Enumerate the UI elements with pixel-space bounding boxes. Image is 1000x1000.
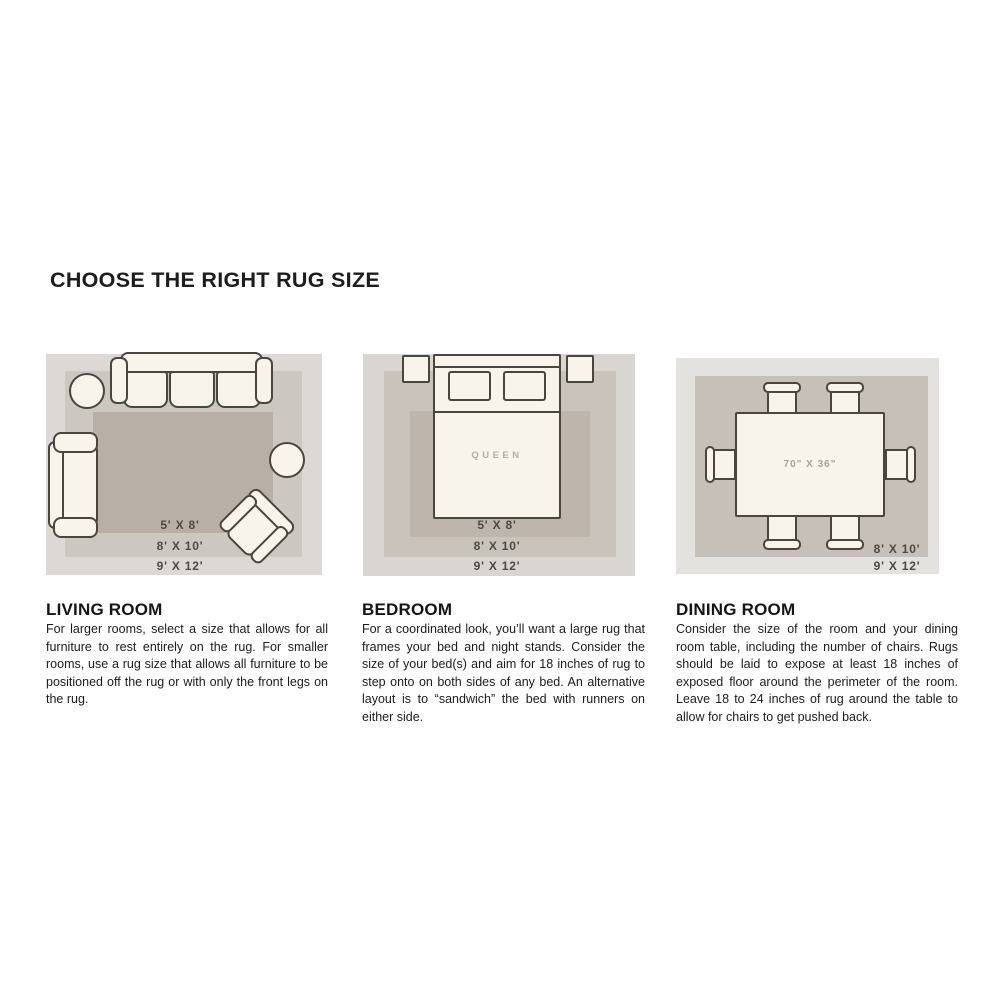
rug-size-label: 9' X 12' <box>474 559 521 573</box>
chair-back <box>705 446 715 483</box>
nightstand-icon <box>566 355 594 383</box>
chair-icon <box>826 513 864 550</box>
bedroom-description: For a coordinated look, you’ll want a la… <box>362 621 645 727</box>
chair-icon <box>763 513 801 550</box>
loveseat-back <box>48 441 64 529</box>
pillow-icon <box>503 371 546 401</box>
sofa-armrest <box>110 357 128 404</box>
round-table-icon <box>69 373 105 409</box>
sofa-cushion <box>169 371 215 408</box>
rug-size-label: 9' X 12' <box>157 559 204 573</box>
living-room-heading: LIVING ROOM <box>46 600 162 620</box>
page-title: CHOOSE THE RIGHT RUG SIZE <box>50 268 380 293</box>
bed-fold-line <box>434 411 560 413</box>
chair-seat <box>712 449 736 480</box>
sofa-cushion <box>123 371 168 408</box>
chair-back <box>826 382 864 393</box>
bed-size-label: QUEEN <box>433 450 561 461</box>
rug-size-label: 8' X 10' <box>157 539 204 553</box>
dining-room-description: Consider the size of the room and your d… <box>676 621 958 727</box>
chair-back <box>906 446 916 483</box>
chair-back <box>763 539 801 550</box>
sofa-icon <box>110 352 273 408</box>
bedroom-heading: BEDROOM <box>362 600 452 620</box>
rug-size-label: 5' X 8' <box>477 518 516 532</box>
dining-room-heading: DINING ROOM <box>676 600 795 620</box>
loveseat-body <box>60 445 98 525</box>
rug-size-label: 8' X 10' <box>474 539 521 553</box>
living-room-description: For larger rooms, select a size that all… <box>46 621 328 709</box>
pillow-icon <box>448 371 491 401</box>
rug-size-label: 8' X 10' <box>874 542 921 556</box>
chair-icon <box>705 446 736 483</box>
sofa-back <box>120 352 263 373</box>
chair-icon <box>885 446 916 483</box>
nightstand-icon <box>402 355 430 383</box>
rug-size-label: 5' X 8' <box>160 518 199 532</box>
chair-back <box>826 539 864 550</box>
bed-headboard <box>433 354 561 368</box>
table-size-label: 70" X 36" <box>737 459 883 470</box>
rug-size-label: 9' X 12' <box>874 559 921 573</box>
dining-table-icon: 70" X 36" <box>735 412 885 517</box>
dining-room-diagram: 70" X 36" 8' X 10' 9' X 12' <box>676 358 939 574</box>
bedroom-diagram: QUEEN 5' X 8' 8' X 10' 9' X 12' <box>363 354 635 576</box>
loveseat-armrest <box>53 517 98 538</box>
loveseat-icon <box>48 432 98 538</box>
chair-back <box>763 382 801 393</box>
sofa-armrest <box>255 357 273 404</box>
rug-size-guide: CHOOSE THE RIGHT RUG SIZE <box>0 0 1000 1000</box>
round-table-icon <box>269 442 305 478</box>
bed-icon: QUEEN <box>433 354 561 519</box>
loveseat-armrest <box>53 432 98 453</box>
living-room-diagram: 5' X 8' 8' X 10' 9' X 12' <box>46 354 322 575</box>
